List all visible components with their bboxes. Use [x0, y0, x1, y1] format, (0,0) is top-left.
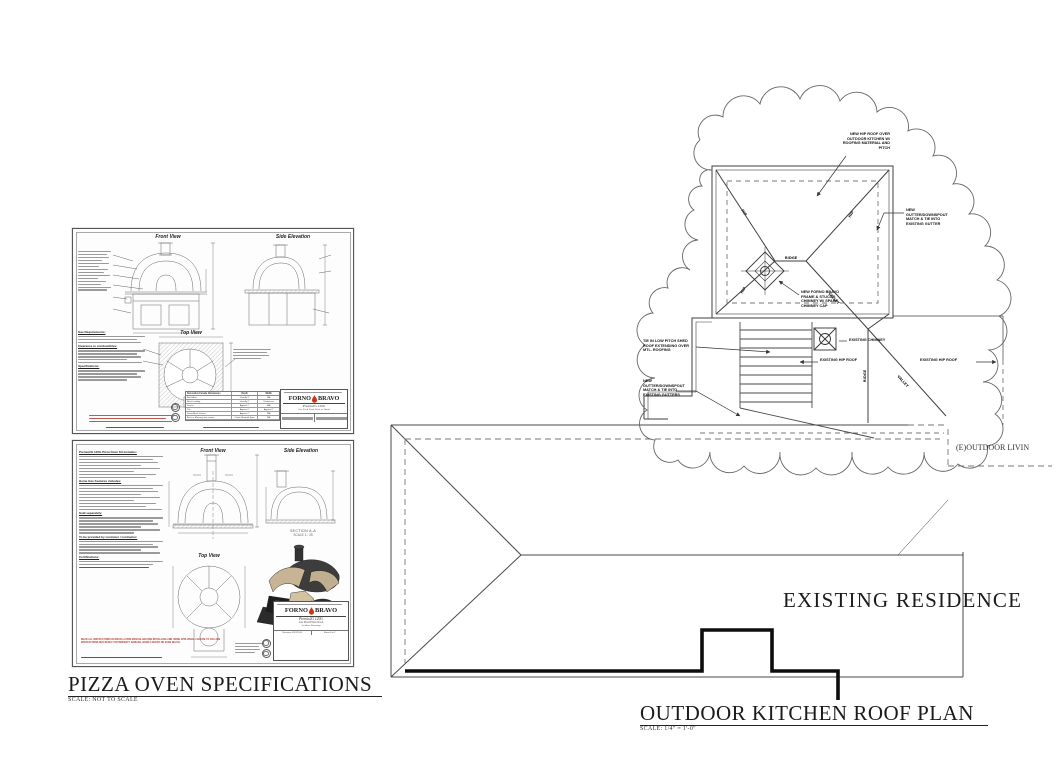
tb-cell [315, 414, 348, 422]
existing-chimney [814, 328, 836, 350]
sheet-number-cell: Sheet 6 of 7 [312, 631, 349, 635]
sheet1-front-view-drawing [113, 243, 215, 333]
spec-lines [78, 350, 148, 363]
spec-sheet-bottom: Front View Side Elevation Top View SECTI… [72, 440, 354, 667]
kit-heading: Premio2G 120G Pizza Oven Kit includes: [79, 451, 167, 454]
cert-heading: Certifications: [79, 556, 167, 559]
link-line [79, 567, 149, 568]
gas-heading: Home Gas Features includes: [79, 480, 167, 483]
existing-residence-roof [391, 425, 963, 677]
roof-plan-scale-note: SCALE: 1/4" = 1'-0" [640, 726, 988, 732]
sheet1-left-callouts [78, 249, 112, 292]
kitchen-wall-dashed [700, 181, 1003, 433]
pizza-specs-scale-note: SCALE: NOT TO SCALE [68, 697, 382, 703]
spec-lines [78, 370, 148, 380]
annotation-new-roof: NEW HIP ROOF OVER OUTDOOR KITCHEN W/ ROO… [838, 132, 890, 151]
sheet2-side-elevation-label: Side Elevation [261, 448, 341, 454]
section-heading: Clearance to combustibles: [78, 345, 148, 348]
flame-icon [309, 607, 314, 615]
residence-wall-dashed [405, 425, 1052, 663]
section-scale: SCALE 1 : 25 [273, 533, 333, 537]
sold-lines [79, 517, 167, 533]
table-title: Decorative Facade Allowances [186, 392, 232, 395]
provided-lines [79, 541, 167, 554]
etl-mark-icon [262, 639, 271, 648]
facade-allowances-table: Decorative Facade Allowances Depth Width… [185, 391, 280, 421]
provided-heading: To be provided by customer / contractor: [79, 536, 167, 539]
section-heading: Specifications: [78, 365, 148, 368]
sheet2-front-view-drawing [169, 455, 259, 539]
annotation-gutter-left: NEW GUTTER/DOWNSPOUT MATCH & TIE INTO EX… [643, 379, 693, 398]
hip-label-tl: HIP [740, 208, 747, 216]
sheet2-address [235, 641, 263, 655]
sold-heading: Sold separately: [79, 512, 167, 515]
tb-cell [281, 414, 315, 422]
sheet1-title-block: FORNO BRAVO Premio2G 120G Gas Fired Pizz… [280, 389, 348, 429]
brand-forno: FORNO [289, 395, 311, 402]
sheet2-front-view-label: Front View [173, 448, 253, 454]
spec-lines [78, 336, 148, 343]
sheet1-top-view-label: Top View [151, 330, 231, 336]
col-depth: Depth [232, 392, 258, 395]
annotation-existing-hip-left: EXISTING HIP ROOF [820, 358, 866, 363]
tb-top-bar [277, 604, 345, 605]
product-name: Gas Fired Pizza Oven w/ Stand [281, 408, 347, 411]
drawing-sheet: RIDGE HIP HIP HIP VALLEY VALLEY RIDGE NE… [0, 0, 1056, 774]
outdoor-living-label: (E)OUTDOOR LIVIN [956, 443, 1029, 452]
etl-mark-icon [171, 403, 180, 412]
kitchen-left-step [644, 318, 712, 419]
section-callout: SECTION A-A SCALE 1 : 25 [273, 529, 333, 537]
gas-lines [79, 485, 167, 510]
sheet1-side-elevation-drawing [245, 245, 331, 325]
kit-lines [79, 456, 167, 478]
sheet1-side-elevation-label: Side Elevation [253, 234, 333, 240]
sheet2-side-elevation-drawing [266, 471, 335, 523]
kitchen-hip-roof [712, 166, 1003, 423]
cert-lines [79, 561, 167, 565]
sheet2-warning-text: READ ALL INSTRUCTIONS IN INSTALLATION MA… [81, 639, 229, 645]
sheet1-front-view-label: Front View [128, 234, 208, 240]
ridge-label: RIDGE [785, 256, 798, 260]
drawing-type: Architect Drawings [274, 624, 348, 627]
sheet1-warning-lines [89, 413, 181, 424]
section-heading: Gas Requirements: [78, 331, 148, 334]
link-line [203, 427, 259, 428]
sheet2-title-block: FORNO BRAVO Premio2G 120G Gas Fired Pizz… [273, 601, 349, 661]
link-line [81, 657, 162, 658]
sheet2-cert-marks [261, 637, 271, 660]
sheet2-left-lists: Premio2G 120G Pizza Oven Kit includes: H… [79, 449, 167, 570]
revision-cell: Revision: 4/12/2016 [274, 631, 312, 635]
brand-bravo: BRAVO [315, 607, 337, 614]
residence-thick-wall [405, 630, 838, 700]
csa-mark-icon [262, 649, 271, 658]
logo-rule [276, 616, 346, 617]
annotation-shed-roof: TIE IN LOW PITCH SHED ROOF EXTENDING OVE… [643, 339, 697, 353]
annotation-gutter-right: NEW GUTTER/DOWNSPOUT MATCH & TIE INTO EX… [906, 208, 954, 227]
roof-plan-title: OUTDOOR KITCHEN ROOF PLAN [640, 701, 988, 726]
flame-icon [312, 395, 317, 403]
pizza-specs-title: PIZZA OVEN SPECIFICATIONS [68, 672, 382, 697]
brand-bravo: BRAVO [318, 395, 339, 402]
sheet1-left-specs: Gas Requirements: Clearance to combustib… [78, 329, 148, 382]
sheet1-topview-callouts [233, 347, 273, 361]
hip-label-tr: HIP [848, 210, 855, 218]
ridge-vertical-label: RIDGE [863, 369, 867, 382]
annotation-new-chimney: NEW FORNO BRAVO FRAME & STUCCO CHIMNEY W… [801, 290, 845, 309]
annotation-existing-hip-right: EXISTING HIP ROOF [920, 358, 966, 363]
table-row: Brick or Masonry not veneer Check Materi… [186, 416, 279, 420]
spec-sheet-top: Front View Side Elevation Top View Gas R… [72, 228, 354, 434]
existing-residence-title: EXISTING RESIDENCE [783, 588, 1022, 613]
tb-top-bar [284, 392, 344, 393]
sheet2-top-view-label: Top View [173, 553, 245, 559]
brand-forno: FORNO [285, 607, 308, 614]
annotation-existing-chimney: EXISTING CHIMNEY [849, 338, 895, 343]
col-width: Width [258, 392, 279, 395]
valley-label-2: VALLEY [896, 374, 909, 388]
new-chimney [741, 247, 789, 295]
link-line [106, 427, 163, 428]
